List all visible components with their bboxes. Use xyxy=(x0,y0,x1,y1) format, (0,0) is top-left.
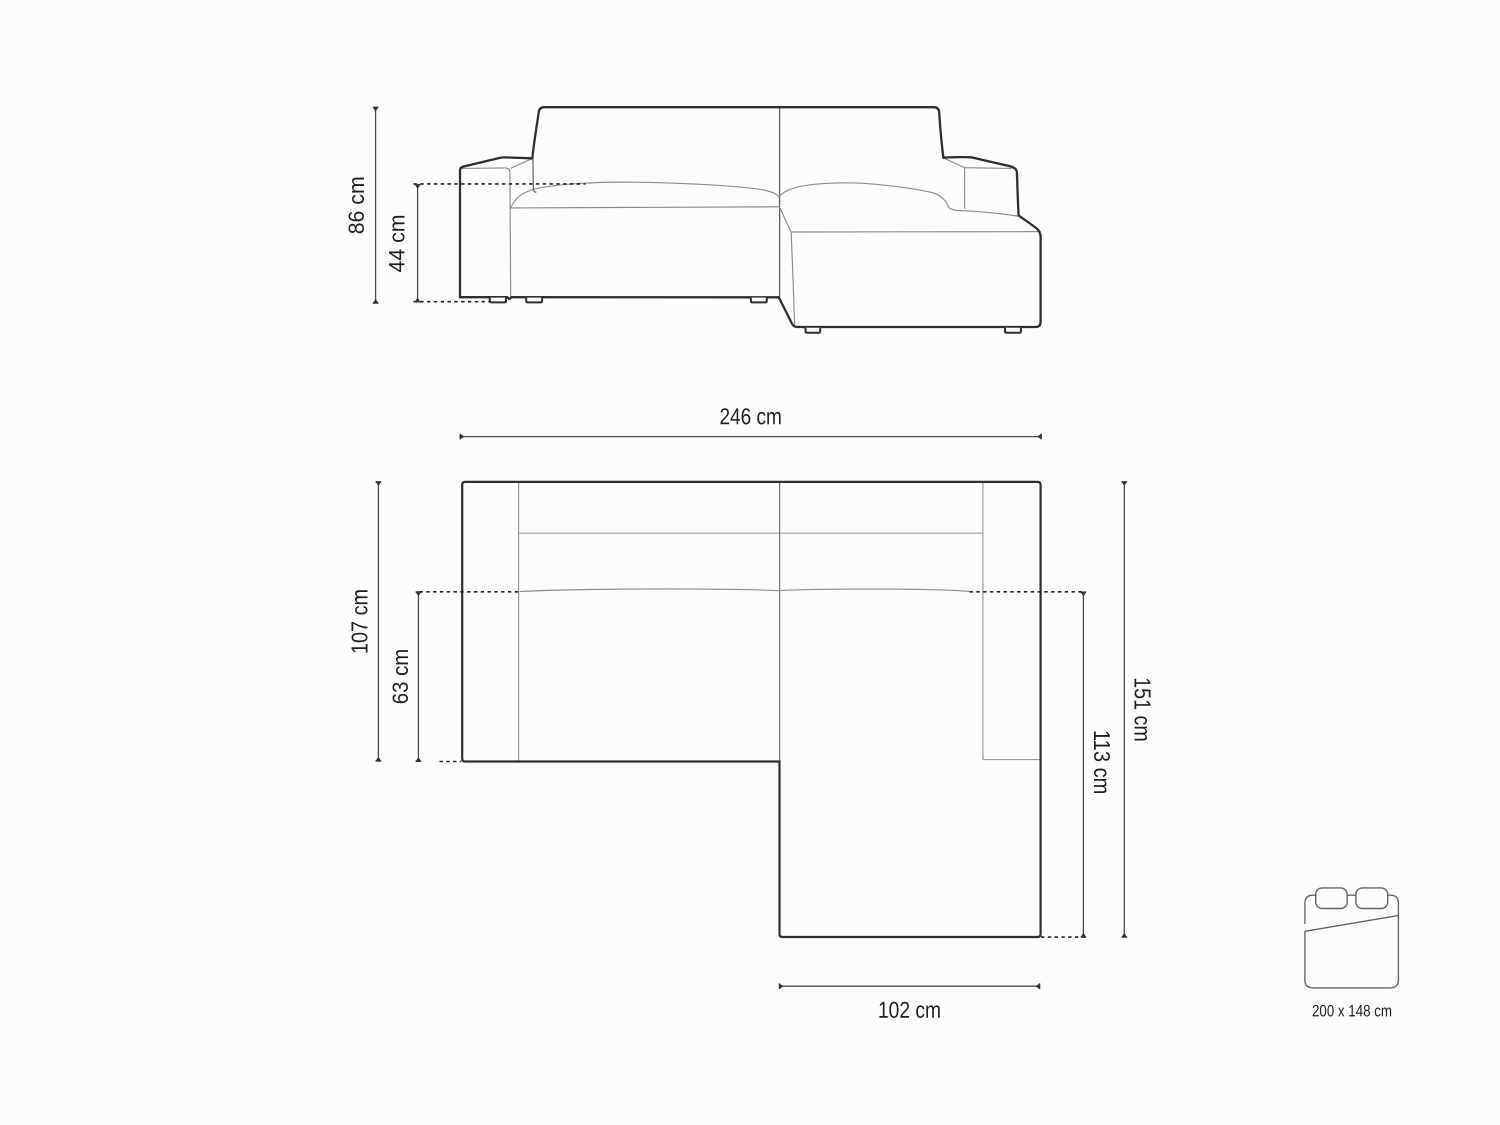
svg-text:246 cm: 246 cm xyxy=(719,403,782,429)
svg-text:44 cm: 44 cm xyxy=(385,215,410,273)
svg-text:151 cm: 151 cm xyxy=(1130,677,1156,742)
svg-text:63 cm: 63 cm xyxy=(388,649,413,705)
svg-text:107 cm: 107 cm xyxy=(346,589,372,654)
svg-text:86 cm: 86 cm xyxy=(344,176,369,234)
svg-text:113 cm: 113 cm xyxy=(1089,730,1115,795)
svg-text:102 cm: 102 cm xyxy=(878,997,941,1023)
svg-text:200 x 148 cm: 200 x 148 cm xyxy=(1312,1002,1392,1020)
